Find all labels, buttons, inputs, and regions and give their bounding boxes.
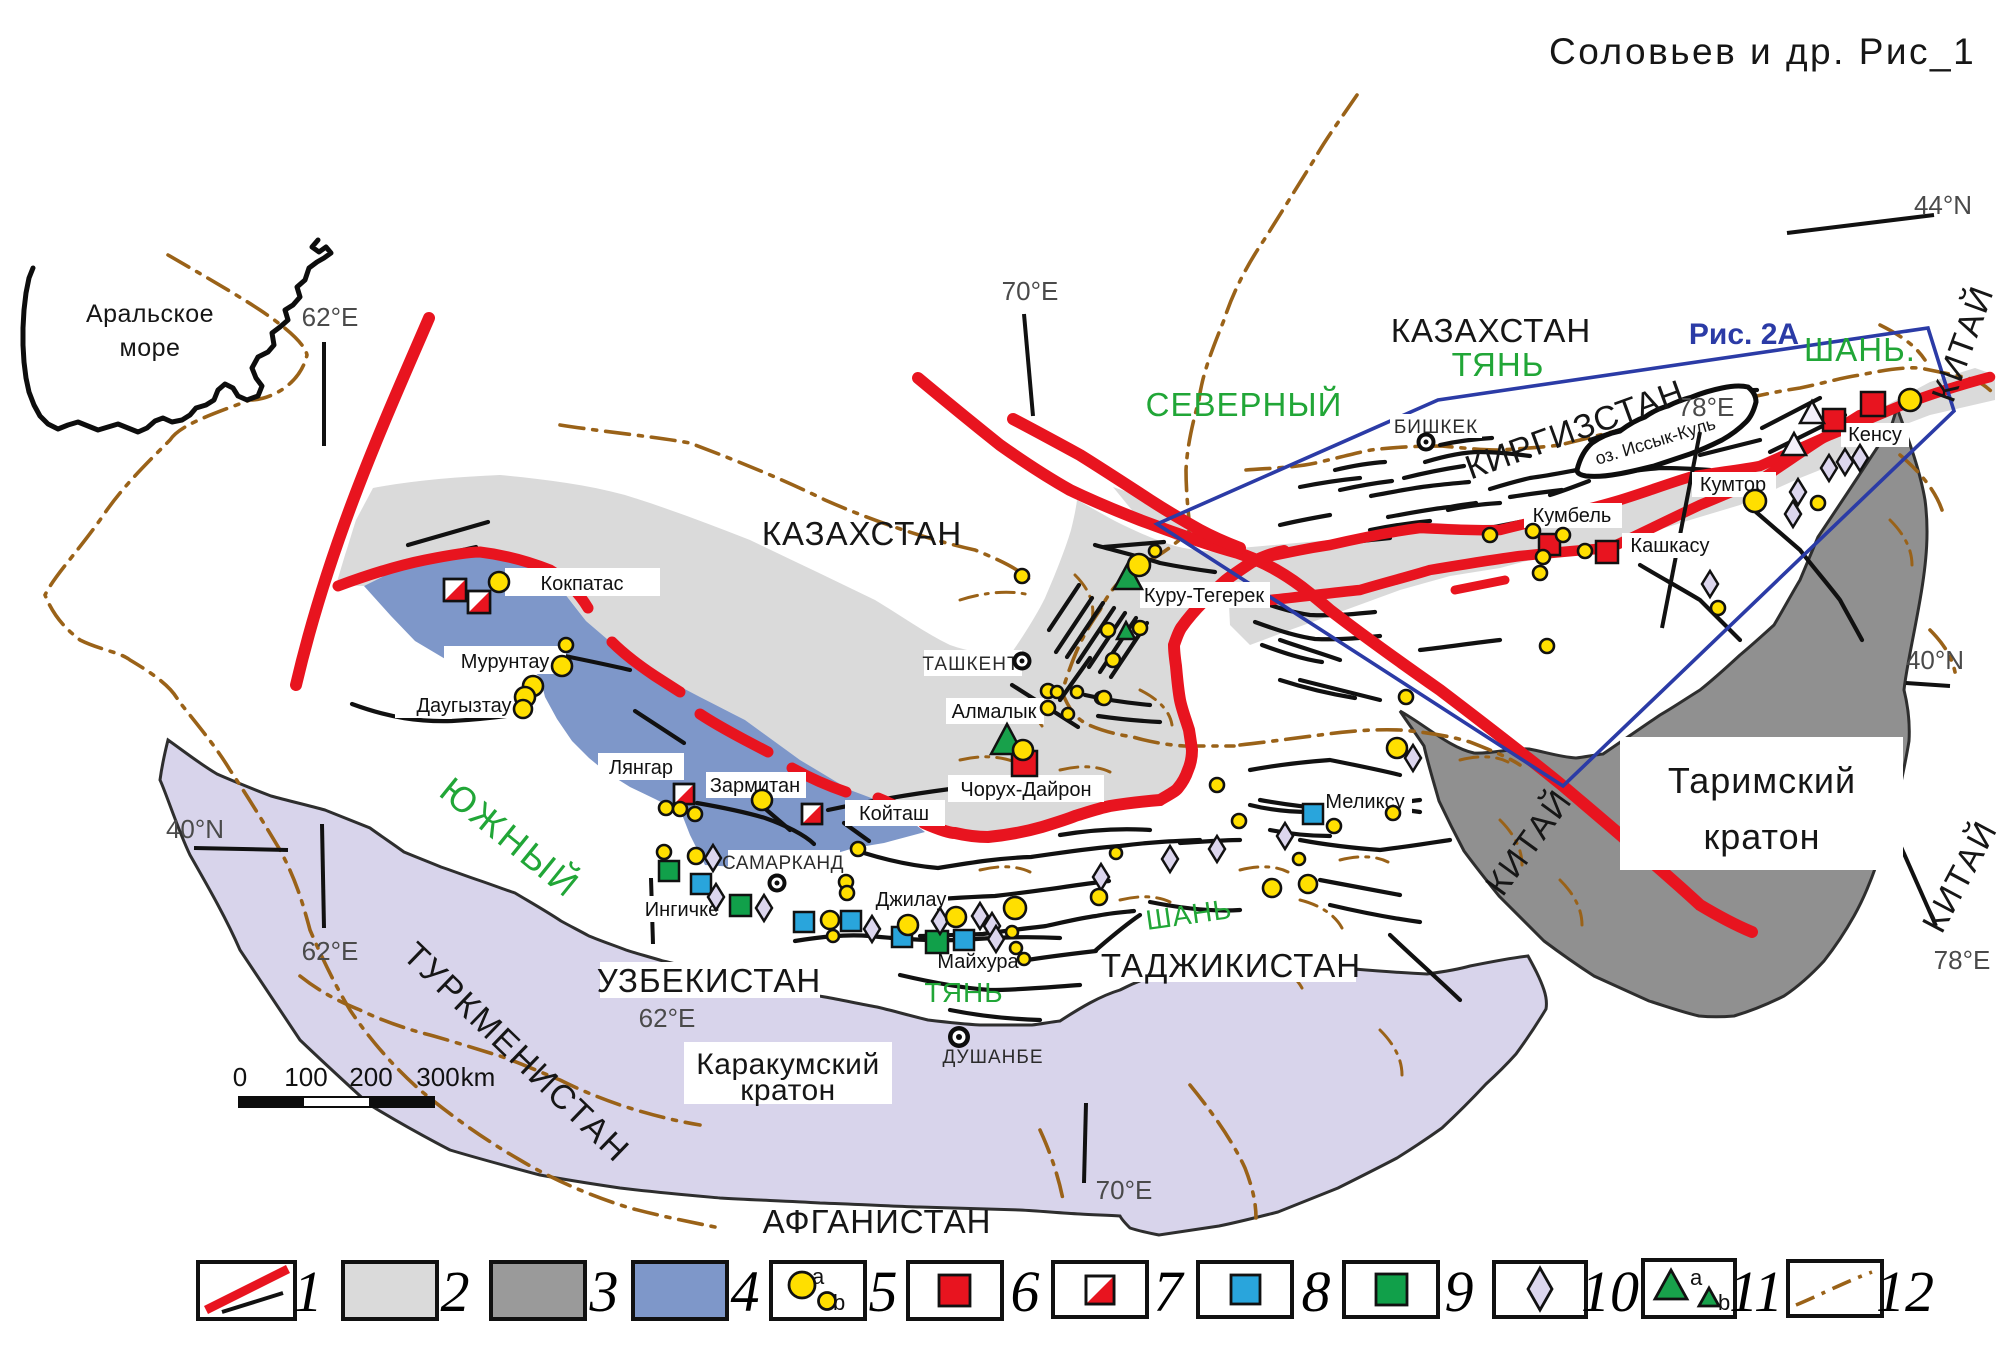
svg-text:100: 100 xyxy=(284,1062,327,1092)
svg-text:Ингичке: Ингичке xyxy=(645,899,719,921)
svg-text:Кашкасу: Кашкасу xyxy=(1630,535,1709,557)
svg-text:Койташ: Койташ xyxy=(859,803,929,825)
svg-text:Куру-Тегерек: Куру-Тегерек xyxy=(1144,585,1264,607)
svg-text:БИШКЕК: БИШКЕК xyxy=(1394,417,1478,438)
svg-text:Аральское: Аральское xyxy=(86,300,214,328)
svg-text:a: a xyxy=(812,1264,825,1289)
svg-text:ДУШАНБЕ: ДУШАНБЕ xyxy=(942,1047,1043,1068)
svg-text:Соловьев и др. Рис_1: Соловьев и др. Рис_1 xyxy=(1549,31,1976,72)
svg-text:70°E: 70°E xyxy=(1096,1175,1153,1205)
svg-text:Чорух-Дайрон: Чорух-Дайрон xyxy=(960,779,1091,801)
svg-text:КАЗАХСТАН: КАЗАХСТАН xyxy=(762,515,962,552)
svg-text:8: 8 xyxy=(1302,1259,1331,1324)
svg-text:12: 12 xyxy=(1876,1259,1934,1324)
svg-text:62°E: 62°E xyxy=(302,302,359,332)
svg-text:море: море xyxy=(120,334,181,362)
svg-text:km: km xyxy=(461,1062,496,1092)
svg-text:a: a xyxy=(1690,1265,1703,1290)
svg-text:0: 0 xyxy=(233,1062,247,1092)
svg-text:40°N: 40°N xyxy=(1906,645,1964,675)
svg-text:ТАШКЕНТ: ТАШКЕНТ xyxy=(922,654,1019,675)
svg-text:кратон: кратон xyxy=(1704,816,1821,857)
svg-text:Кокпатас: Кокпатас xyxy=(540,573,623,595)
svg-text:5: 5 xyxy=(869,1259,898,1324)
svg-text:УЗБЕКИСТАН: УЗБЕКИСТАН xyxy=(597,962,821,999)
svg-text:ТЯНЬ: ТЯНЬ xyxy=(924,977,1003,1008)
svg-text:9: 9 xyxy=(1445,1259,1474,1324)
svg-text:СЕВЕРНЫЙ: СЕВЕРНЫЙ xyxy=(1146,386,1343,423)
svg-text:7: 7 xyxy=(1154,1259,1185,1324)
svg-text:Кенсу: Кенсу xyxy=(1848,424,1902,446)
svg-text:Кумбель: Кумбель xyxy=(1533,505,1612,527)
svg-text:11: 11 xyxy=(1729,1259,1783,1324)
svg-text:КАЗАХСТАН: КАЗАХСТАН xyxy=(1391,312,1591,349)
svg-text:ШАНЬ.: ШАНЬ. xyxy=(1804,331,1916,368)
svg-text:2: 2 xyxy=(441,1259,470,1324)
svg-text:1: 1 xyxy=(294,1259,323,1324)
svg-text:44°N: 44°N xyxy=(1914,190,1972,220)
svg-text:78°E: 78°E xyxy=(1934,945,1991,975)
svg-text:АФГАНИСТАН: АФГАНИСТАН xyxy=(763,1203,992,1240)
svg-text:62°E: 62°E xyxy=(302,936,359,966)
svg-text:Рис. 2А: Рис. 2А xyxy=(1689,318,1799,351)
svg-text:3: 3 xyxy=(589,1259,619,1324)
svg-text:300: 300 xyxy=(416,1062,459,1092)
svg-text:кратон: кратон xyxy=(740,1074,836,1107)
svg-text:Лянгар: Лянгар xyxy=(609,757,673,779)
svg-text:6: 6 xyxy=(1011,1259,1040,1324)
svg-text:Мурунтау: Мурунтау xyxy=(461,651,549,673)
svg-text:Алмалык: Алмалык xyxy=(952,701,1037,723)
svg-text:4: 4 xyxy=(731,1259,760,1324)
svg-text:10: 10 xyxy=(1581,1259,1639,1324)
svg-text:200: 200 xyxy=(349,1062,392,1092)
svg-text:Таримский: Таримский xyxy=(1668,760,1856,801)
svg-text:62°E: 62°E xyxy=(639,1003,696,1033)
svg-text:Даугызтау: Даугызтау xyxy=(416,695,511,717)
svg-text:40°N: 40°N xyxy=(166,814,224,844)
svg-text:Майхура: Майхура xyxy=(937,951,1019,973)
svg-text:ТАДЖИКИСТАН: ТАДЖИКИСТАН xyxy=(1101,947,1361,984)
svg-text:ТЯНЬ: ТЯНЬ xyxy=(1452,346,1545,383)
svg-text:b: b xyxy=(833,1290,845,1315)
svg-text:70°E: 70°E xyxy=(1002,276,1059,306)
svg-text:САМАРКАНД: САМАРКАНД xyxy=(722,853,844,874)
svg-text:Джилау: Джилау xyxy=(876,889,947,911)
